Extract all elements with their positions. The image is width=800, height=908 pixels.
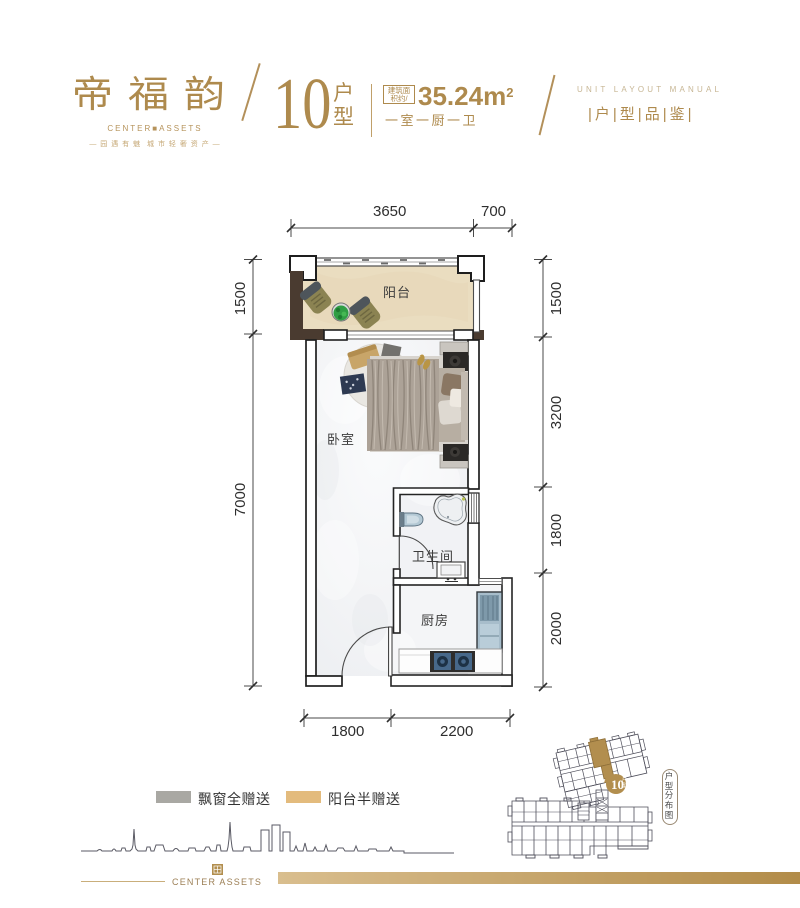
svg-text:型: 型	[622, 782, 627, 789]
svg-text:户: 户	[622, 776, 627, 783]
